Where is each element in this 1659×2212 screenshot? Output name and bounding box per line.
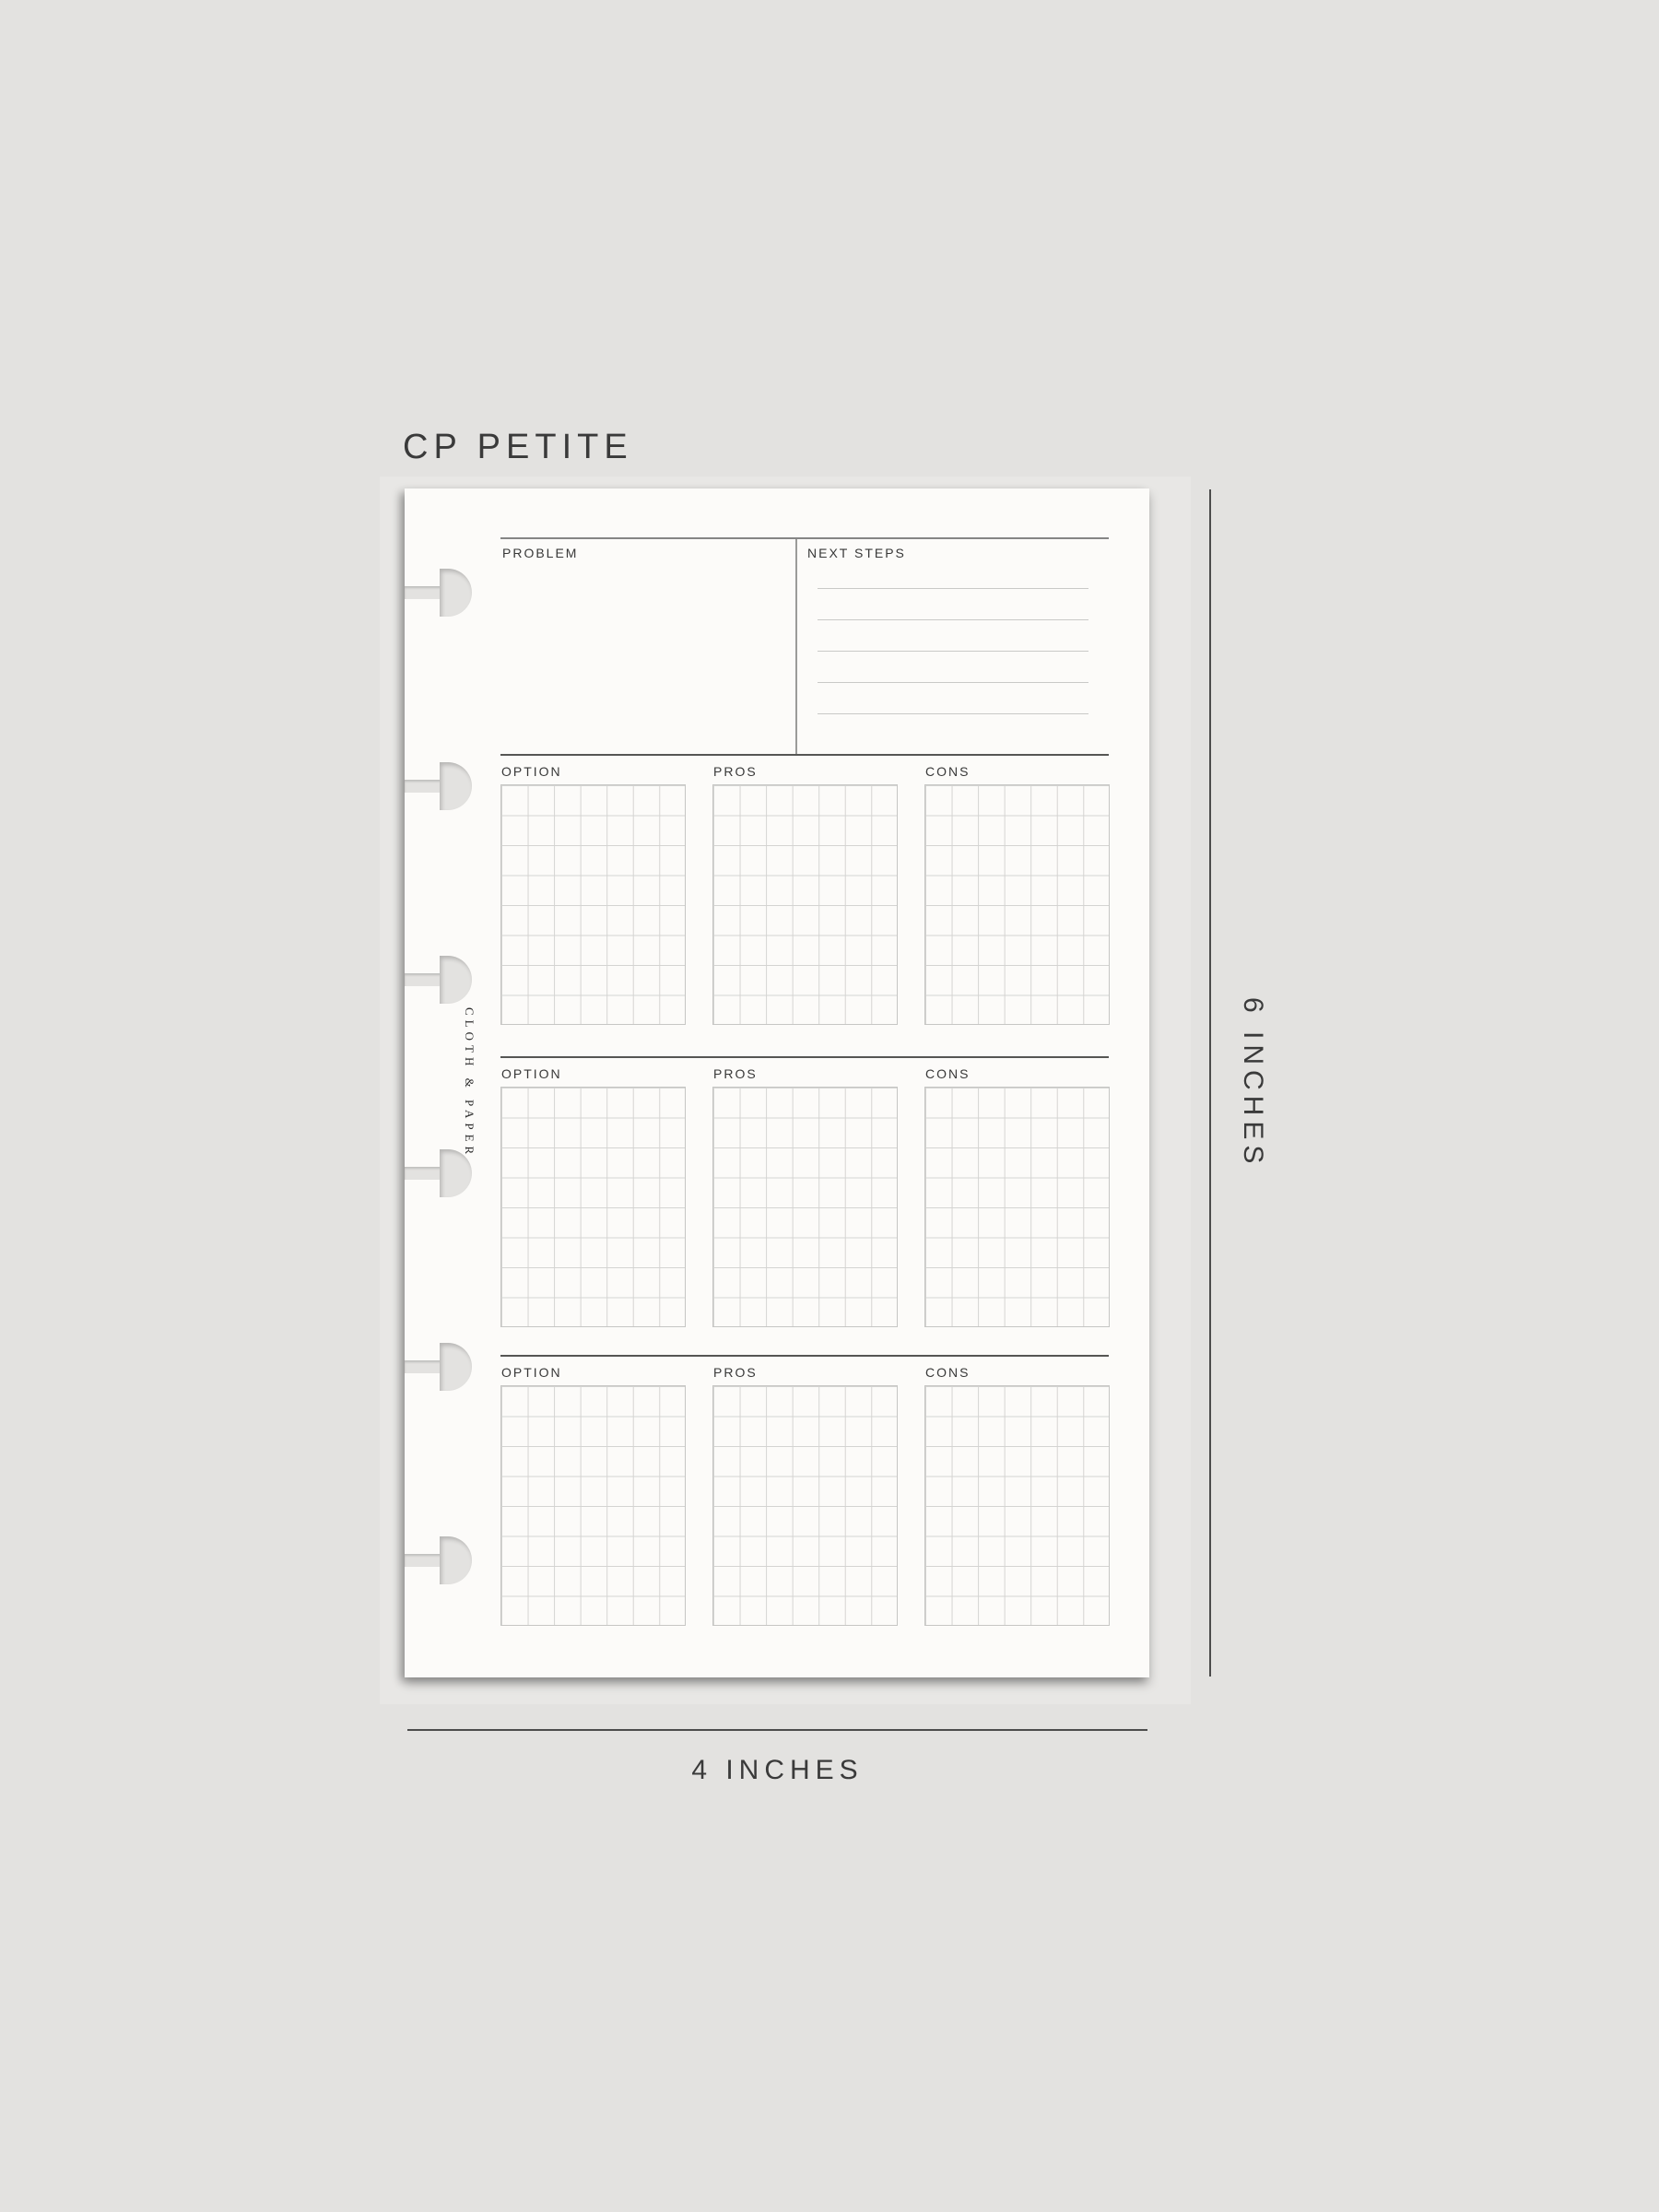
notch-slot <box>405 780 443 793</box>
ruled-line <box>818 651 1088 652</box>
notch-slot <box>405 1360 443 1373</box>
option-grid <box>500 784 686 1025</box>
binding-notch <box>405 1149 473 1197</box>
brand-mark: CLOTH & PAPER <box>462 1007 477 1159</box>
ruled-line <box>818 588 1088 589</box>
pros-label: PROS <box>713 1365 758 1380</box>
ruled-line <box>818 619 1088 620</box>
height-dimension-wrap: 6 INCHES <box>1237 489 1268 1677</box>
option-label: OPTION <box>501 1066 562 1081</box>
problem-label: PROBLEM <box>502 546 578 560</box>
ruled-line <box>818 713 1088 714</box>
pros-label: PROS <box>713 1066 758 1081</box>
header-column-divider <box>795 539 797 754</box>
option-label: OPTION <box>501 764 562 779</box>
pros-label: PROS <box>713 764 758 779</box>
section-divider <box>500 1355 1109 1357</box>
size-title: CP PETITE <box>403 428 633 467</box>
pros-grid <box>712 1087 898 1327</box>
cons-label: CONS <box>925 1365 970 1380</box>
next-steps-ruled-lines <box>818 588 1088 745</box>
notch-bulb <box>440 1343 472 1391</box>
cons-grid <box>924 784 1110 1025</box>
product-mockup-canvas: CP PETITE PROBLEM NEXT STEPS OPTION PROS… <box>0 0 1659 2212</box>
notch-slot <box>405 1167 443 1180</box>
height-measure-line <box>1209 489 1211 1677</box>
cons-label: CONS <box>925 1066 970 1081</box>
notch-slot <box>405 1554 443 1567</box>
pros-grid <box>712 1385 898 1626</box>
cons-label: CONS <box>925 764 970 779</box>
height-dimension-label: 6 INCHES <box>1237 997 1268 1169</box>
option-section-2: OPTION PROS CONS <box>500 1056 1109 1327</box>
notch-bulb <box>440 762 472 810</box>
notch-bulb <box>440 1149 472 1197</box>
binding-notch <box>405 762 473 810</box>
next-steps-label: NEXT STEPS <box>807 546 906 560</box>
notch-bulb <box>440 1536 472 1584</box>
option-grid <box>500 1385 686 1626</box>
option-grid <box>500 1087 686 1327</box>
cons-grid <box>924 1087 1110 1327</box>
ruled-line <box>818 682 1088 683</box>
section-divider <box>500 754 1109 756</box>
pros-grid <box>712 784 898 1025</box>
option-section-3: OPTION PROS CONS <box>500 1355 1109 1626</box>
notch-slot <box>405 586 443 599</box>
binding-notch <box>405 956 473 1004</box>
width-measure-line <box>407 1729 1147 1731</box>
notch-bulb <box>440 956 472 1004</box>
option-section-1: OPTION PROS CONS <box>500 754 1109 1025</box>
binding-notch <box>405 1536 473 1584</box>
notch-slot <box>405 973 443 986</box>
planner-page: PROBLEM NEXT STEPS OPTION PROS CONS OPTI… <box>405 488 1149 1677</box>
cons-grid <box>924 1385 1110 1626</box>
brand-mark-wrap: CLOTH & PAPER <box>462 488 477 1677</box>
option-label: OPTION <box>501 1365 562 1380</box>
binding-notch <box>405 569 473 617</box>
width-dimension-label: 4 INCHES <box>407 1755 1147 1786</box>
section-divider <box>500 1056 1109 1058</box>
binding-notch <box>405 1343 473 1391</box>
notch-bulb <box>440 569 472 617</box>
header-top-rule <box>500 537 1109 539</box>
